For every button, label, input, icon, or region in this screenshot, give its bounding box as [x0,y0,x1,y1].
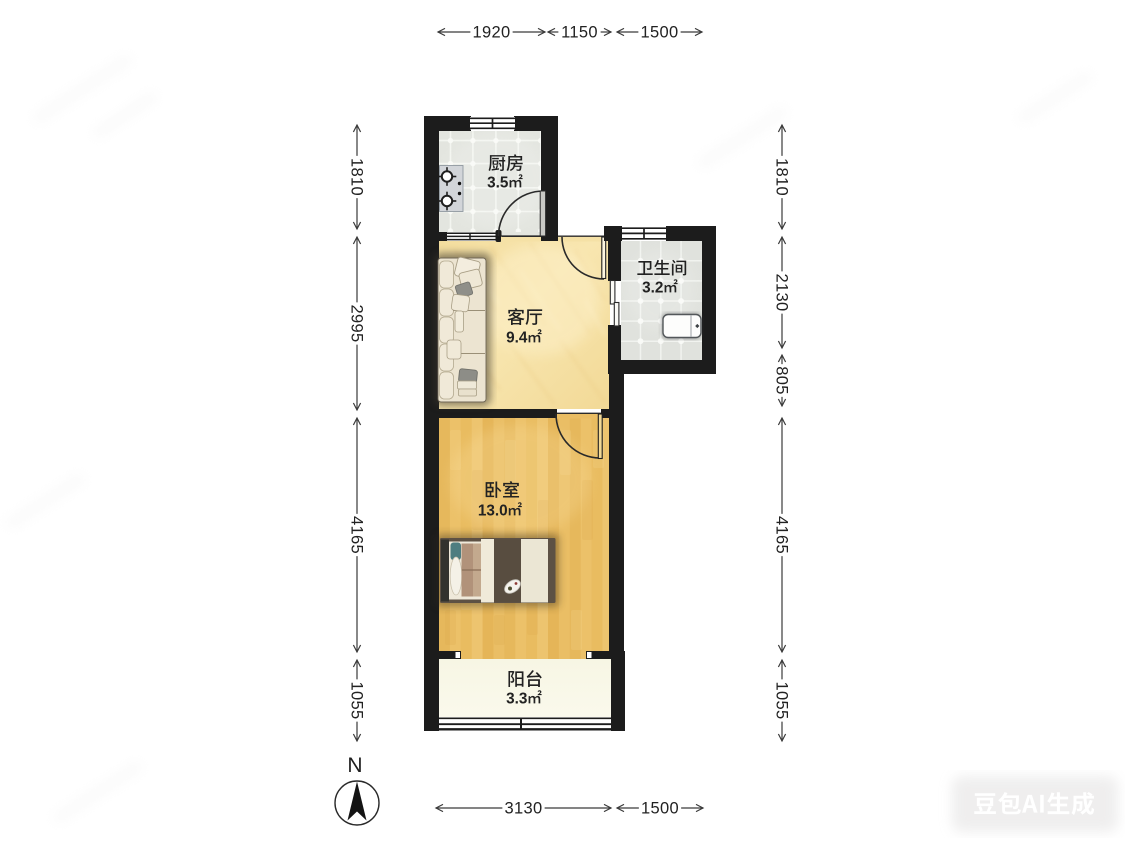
svg-text:3130: 3130 [505,800,543,818]
svg-text:1810: 1810 [348,158,366,196]
svg-text:13.0: 13.0 [478,502,508,519]
svg-text:3.2: 3.2 [642,279,663,296]
svg-text:1500: 1500 [641,800,679,818]
svg-text:4165: 4165 [773,516,791,554]
svg-text:1500: 1500 [641,24,679,42]
svg-text:1150: 1150 [561,24,598,42]
svg-text:1055: 1055 [773,682,791,720]
svg-text:9.4: 9.4 [506,329,528,346]
svg-text:N: N [347,754,362,777]
svg-text:4165: 4165 [348,516,366,554]
svg-text:2995: 2995 [348,305,366,343]
svg-text:1055: 1055 [348,682,366,720]
svg-text:3.5: 3.5 [487,174,509,191]
svg-text:2130: 2130 [773,274,791,312]
svg-text:1920: 1920 [473,24,511,42]
svg-text:805: 805 [773,366,791,394]
svg-text:1810: 1810 [773,158,791,196]
svg-text:3.3: 3.3 [506,690,527,707]
